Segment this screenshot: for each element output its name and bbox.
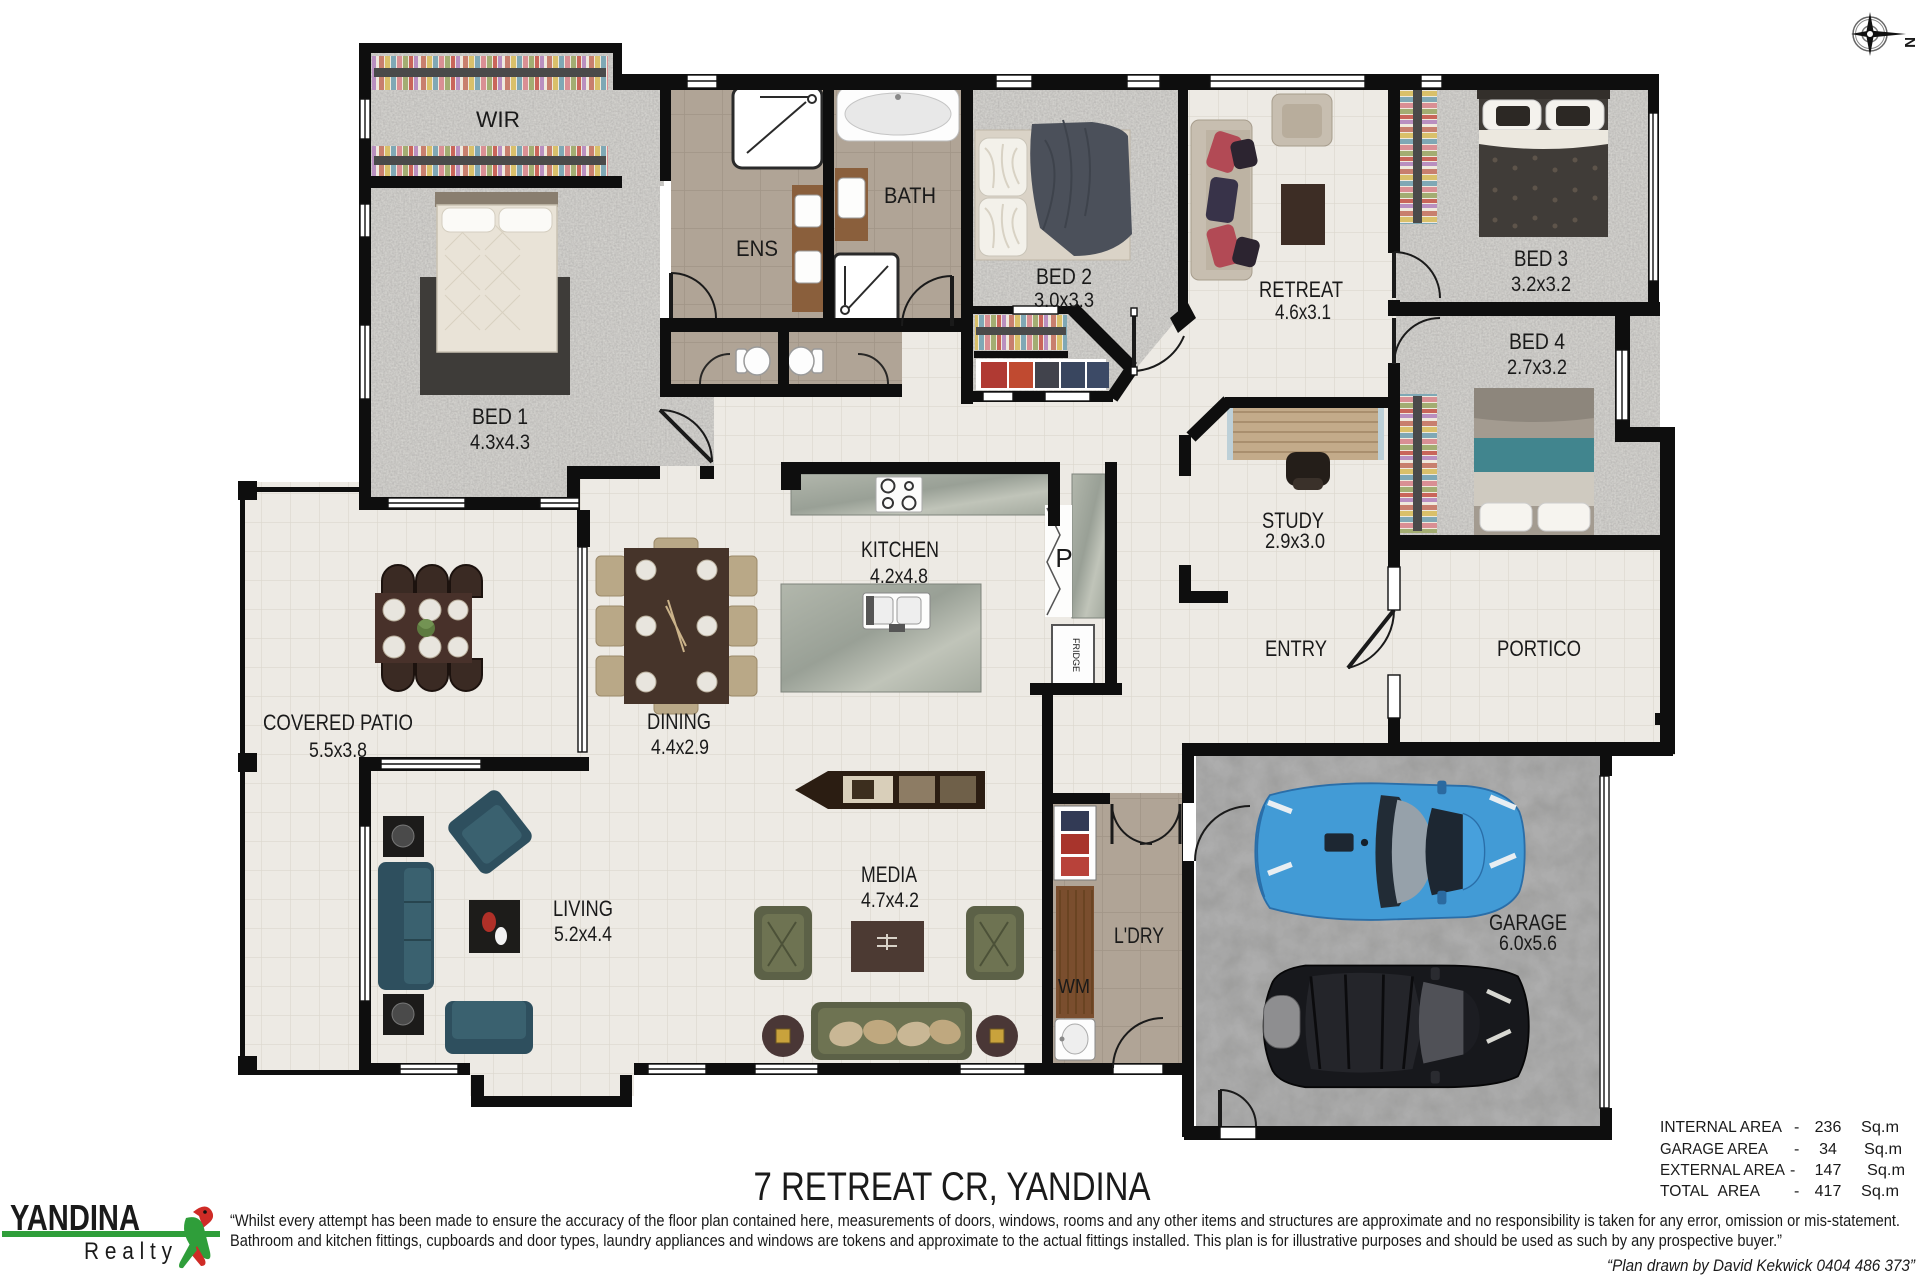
svg-text:“Whilst every attempt has been: “Whilst every attempt has been made to e… bbox=[230, 1212, 1900, 1230]
svg-text:WM: WM bbox=[1058, 976, 1090, 998]
svg-text:3.0x3.3: 3.0x3.3 bbox=[1034, 289, 1094, 312]
svg-text:417: 417 bbox=[1815, 1183, 1842, 1200]
svg-text:BED 3: BED 3 bbox=[1514, 246, 1568, 271]
svg-text:7 RETREAT CR, YANDINA: 7 RETREAT CR, YANDINA bbox=[754, 1165, 1151, 1209]
svg-text:MEDIA: MEDIA bbox=[861, 862, 917, 887]
svg-text:4.7x4.2: 4.7x4.2 bbox=[861, 889, 919, 912]
svg-text:COVERED PATIO: COVERED PATIO bbox=[263, 710, 413, 735]
svg-text:-: - bbox=[1794, 1183, 1799, 1200]
svg-text:ENS: ENS bbox=[736, 236, 778, 261]
svg-text:N: N bbox=[1901, 37, 1918, 48]
svg-text:BED 1: BED 1 bbox=[472, 404, 528, 429]
svg-text:TOTAL AREA: TOTAL AREA bbox=[1660, 1183, 1760, 1200]
svg-text:INTERNAL AREA: INTERNAL AREA bbox=[1660, 1119, 1782, 1136]
svg-text:KITCHEN: KITCHEN bbox=[861, 537, 939, 562]
svg-text:3.2x3.2: 3.2x3.2 bbox=[1511, 273, 1571, 296]
svg-text:147: 147 bbox=[1815, 1162, 1842, 1179]
svg-text:L'DRY: L'DRY bbox=[1114, 923, 1164, 948]
svg-text:R e a l t y: R e a l t y bbox=[84, 1238, 172, 1265]
svg-text:FRIDGE: FRIDGE bbox=[1071, 638, 1081, 672]
svg-text:5.2x4.4: 5.2x4.4 bbox=[554, 923, 612, 946]
svg-text:BED 2: BED 2 bbox=[1036, 264, 1092, 289]
svg-text:P: P bbox=[1055, 543, 1072, 573]
svg-text:4.2x4.8: 4.2x4.8 bbox=[870, 565, 928, 588]
svg-text:DINING: DINING bbox=[647, 709, 711, 734]
svg-text:“Plan drawn by David Kekwick 0: “Plan drawn by David Kekwick 0404 486 37… bbox=[1607, 1257, 1916, 1275]
svg-text:ENTRY: ENTRY bbox=[1265, 636, 1327, 661]
svg-text:WIR: WIR bbox=[476, 107, 520, 132]
svg-text:Sq.m: Sq.m bbox=[1861, 1183, 1899, 1200]
svg-text:-: - bbox=[1794, 1141, 1799, 1158]
svg-text:Sq.m: Sq.m bbox=[1864, 1141, 1902, 1158]
svg-text:-: - bbox=[1790, 1162, 1795, 1179]
svg-text:GARAGE AREA: GARAGE AREA bbox=[1660, 1141, 1768, 1158]
svg-text:LIVING: LIVING bbox=[553, 896, 613, 921]
svg-text:4.3x4.3: 4.3x4.3 bbox=[470, 431, 530, 454]
svg-text:BED 4: BED 4 bbox=[1509, 329, 1565, 354]
svg-text:4.6x3.1: 4.6x3.1 bbox=[1275, 301, 1331, 324]
svg-text:236: 236 bbox=[1815, 1119, 1842, 1136]
svg-text:2.9x3.0: 2.9x3.0 bbox=[1265, 530, 1325, 553]
svg-text:-: - bbox=[1794, 1119, 1799, 1136]
svg-text:5.5x3.8: 5.5x3.8 bbox=[309, 739, 367, 762]
svg-text:2.7x3.2: 2.7x3.2 bbox=[1507, 356, 1567, 379]
svg-text:PORTICO: PORTICO bbox=[1497, 636, 1581, 661]
svg-text:34: 34 bbox=[1819, 1141, 1837, 1158]
svg-text:Sq.m: Sq.m bbox=[1861, 1119, 1899, 1136]
svg-text:4.4x2.9: 4.4x2.9 bbox=[651, 736, 709, 759]
svg-text:Sq.m: Sq.m bbox=[1867, 1162, 1905, 1179]
svg-text:BATH: BATH bbox=[884, 183, 936, 208]
svg-text:EXTERNAL AREA: EXTERNAL AREA bbox=[1660, 1162, 1785, 1179]
svg-text:6.0x5.6: 6.0x5.6 bbox=[1499, 932, 1557, 955]
svg-text:RETREAT: RETREAT bbox=[1259, 277, 1343, 302]
svg-text:Bathroom and kitchen fittings,: Bathroom and kitchen fittings, cupboards… bbox=[230, 1232, 1782, 1250]
